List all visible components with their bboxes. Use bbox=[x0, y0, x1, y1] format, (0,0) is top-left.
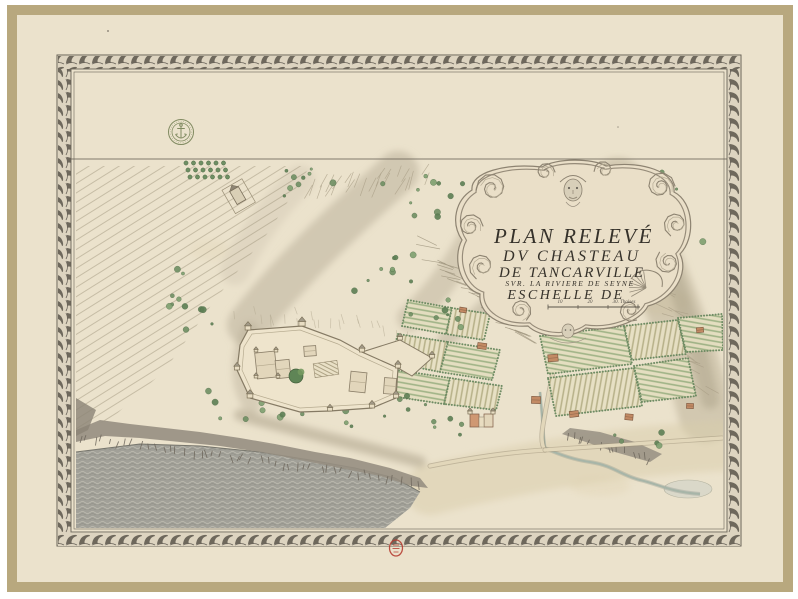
scanned-map-page: PLAN RELEVÉ DV CHASTEAU DE TANCARVILLE S… bbox=[0, 0, 798, 599]
castle-garden-parterre bbox=[313, 360, 339, 377]
scale-tick-10: 10 bbox=[558, 300, 564, 305]
map-title-line1: PLAN RELEVÉ bbox=[493, 224, 654, 248]
scale-label: ESCHELLE DE bbox=[506, 288, 624, 303]
courtyard-tree-highlight bbox=[298, 369, 305, 376]
scale-tick-20: 20 bbox=[588, 300, 594, 305]
map-subtitle: SVR. LA RIVIERE DE SEYNE bbox=[505, 279, 634, 288]
scale-tick-30-thoises: 30. Thoises bbox=[613, 300, 636, 305]
map-artwork: PLAN RELEVÉ DV CHASTEAU DE TANCARVILLE S… bbox=[0, 0, 798, 599]
map-title-line2: DV CHASTEAU bbox=[502, 248, 641, 265]
library-seal bbox=[169, 120, 194, 145]
